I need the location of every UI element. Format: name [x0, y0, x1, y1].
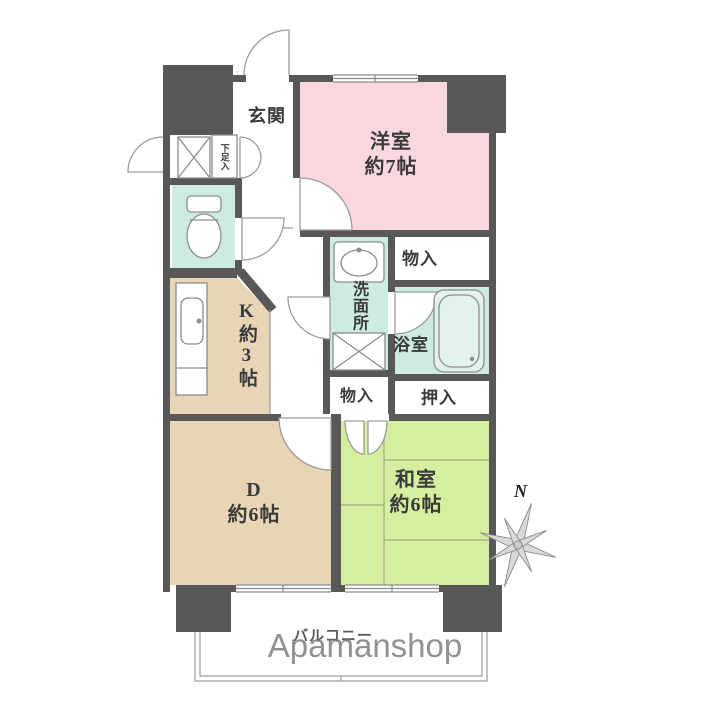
room-toilet: [172, 185, 235, 268]
meter-box-door-arc: [128, 137, 163, 172]
dining-label: D 約6帖: [228, 478, 281, 528]
japanese-room-size: 約6帖: [390, 493, 443, 518]
closet-label: 押入: [421, 387, 457, 408]
floor-plan: 玄関 下足入 洋室 約7帖 物入 洗面所 浴室 押入 物入 K約3帖 D 約6帖…: [0, 0, 720, 720]
window-bottom-left: [236, 585, 331, 592]
window-bottom-right: [345, 585, 439, 592]
compass-north-label: N: [514, 480, 528, 503]
kitchen-label: K約3帖: [234, 301, 258, 389]
shoe-cabinet-door-arcs: [240, 137, 261, 178]
storage-top-label: 物入: [402, 248, 438, 269]
entrance-door-arc: [244, 30, 289, 75]
wall-block-bottom-left: [176, 585, 231, 632]
meter-box-icon: [178, 137, 210, 178]
washroom-door-arc: [288, 297, 330, 339]
storage-hall-label: 物入: [340, 387, 374, 407]
bathroom-label: 浴室: [393, 334, 429, 355]
dining-name: D: [228, 478, 281, 503]
window-top: [333, 75, 418, 82]
wall-block-top-left: [163, 65, 233, 135]
western-room-label: 洋室 約7帖: [365, 130, 418, 180]
japanese-room-label: 和室 約6帖: [390, 468, 443, 518]
japanese-room-name: 和室: [390, 468, 443, 493]
wall-block-bottom-right: [443, 585, 502, 632]
watermark-logo: Apamanshop: [268, 627, 462, 665]
shoe-cabinet-label: 下足入: [218, 144, 229, 171]
washroom-label: 洗面所: [348, 281, 368, 332]
toilet-door-arc: [242, 218, 284, 260]
dining-size: 約6帖: [228, 503, 281, 528]
room-bath: [395, 287, 489, 374]
western-room-name: 洋室: [365, 130, 418, 155]
western-room-size: 約7帖: [365, 155, 418, 180]
genkan-label: 玄関: [248, 105, 286, 128]
